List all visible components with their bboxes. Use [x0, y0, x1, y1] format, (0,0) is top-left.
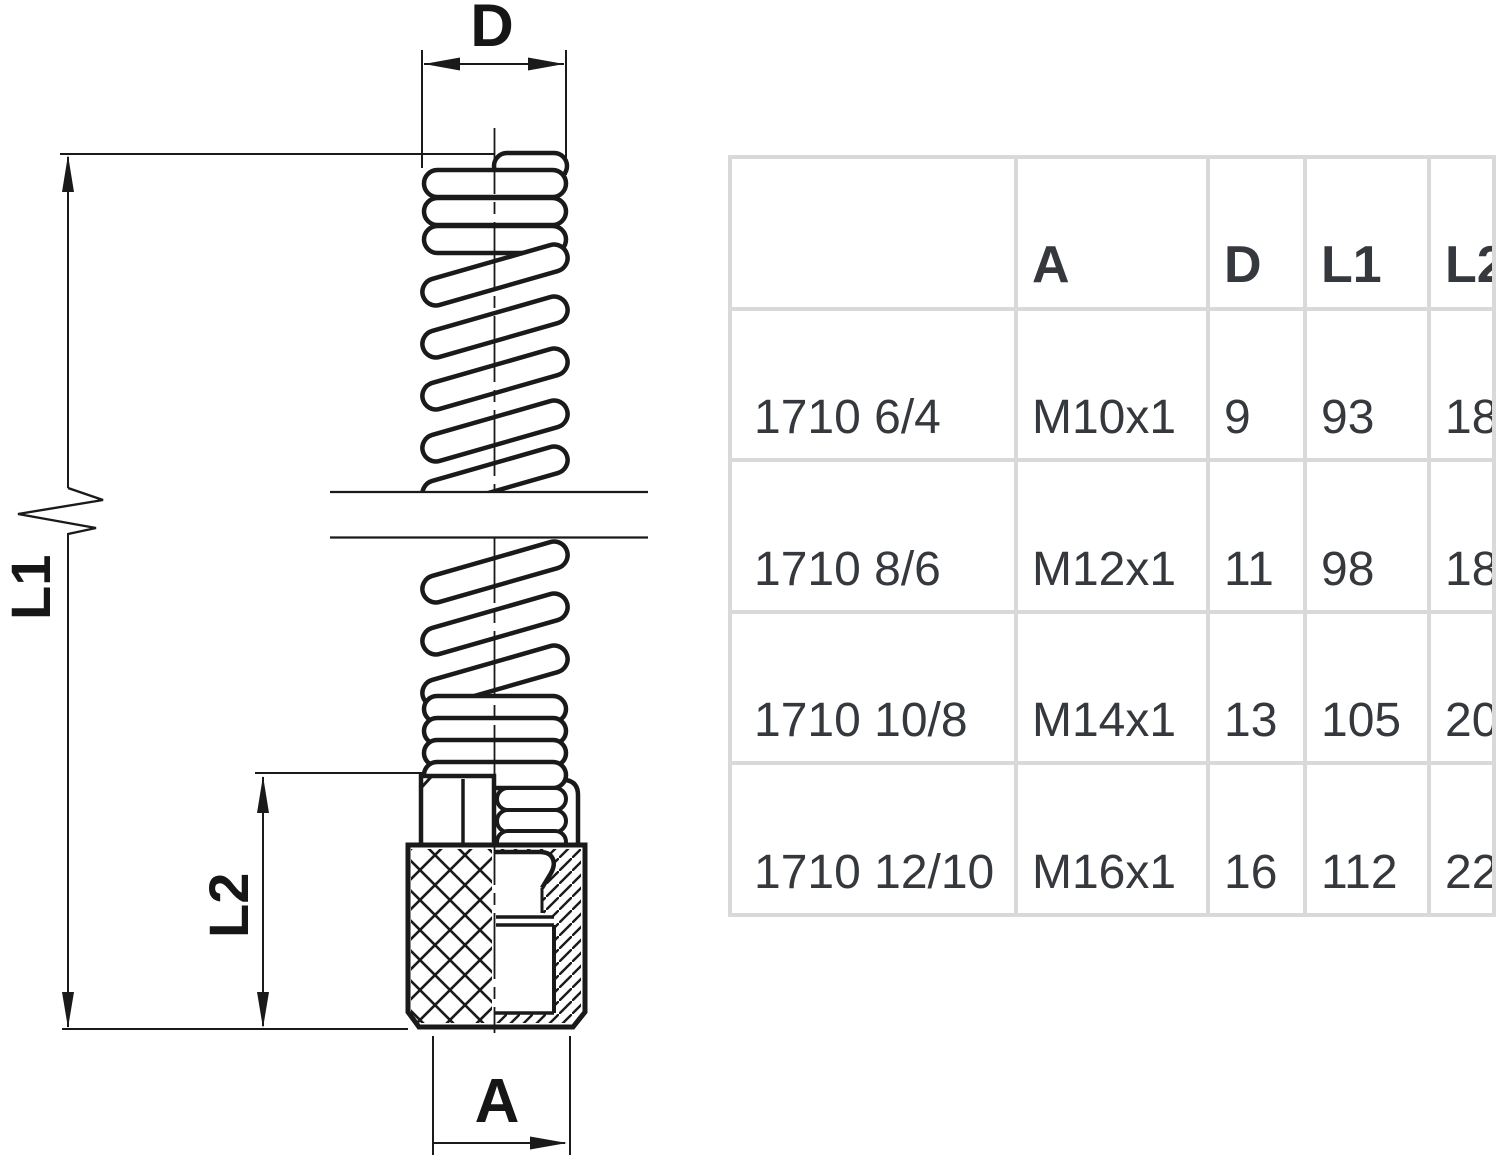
- nut-body: [421, 776, 494, 845]
- table-header-cell: [732, 159, 1014, 307]
- arrowhead-icon: [62, 155, 74, 192]
- table-cell-l1: 105: [1307, 614, 1427, 762]
- table-cell-l1: 98: [1307, 462, 1427, 610]
- table-cell-model: 1710 12/10: [732, 765, 1014, 913]
- coil-turn: [497, 810, 566, 832]
- table-cell-a: M14x1: [1018, 614, 1206, 762]
- label-l2: L2: [197, 873, 260, 938]
- table-cell-model: 1710 6/4: [732, 311, 1014, 459]
- arrowhead-icon: [530, 1137, 567, 1150]
- table-cell-l2: 20: [1431, 614, 1492, 762]
- arrowhead-icon: [62, 992, 74, 1028]
- coil-turn: [497, 788, 566, 810]
- table-cell-d: 16: [1210, 765, 1303, 913]
- table-header-cell-l1: L1: [1307, 159, 1427, 307]
- table-cell-l2: 18: [1431, 462, 1492, 610]
- page: D L1 L2 A: [0, 0, 1500, 1155]
- hex-nut: [421, 776, 494, 845]
- table-cell-model: 1710 8/6: [732, 462, 1014, 610]
- technical-drawing: D L1 L2 A: [0, 0, 720, 1155]
- knurl-texture: [411, 849, 492, 1023]
- table-cell-model: 1710 10/8: [732, 614, 1014, 762]
- label-a: A: [475, 1067, 520, 1136]
- table-header-cell-a: A: [1018, 159, 1206, 307]
- break-zigzag: [18, 488, 103, 534]
- table-cell-l1: 112: [1307, 765, 1427, 913]
- bore-cavity: [494, 852, 554, 1014]
- arrowhead-icon: [257, 776, 269, 813]
- arrowhead-icon: [424, 58, 460, 71]
- table-cell-l2: 22: [1431, 765, 1492, 913]
- dimension-l2: [255, 773, 425, 1028]
- table-cell-a: M12x1: [1018, 462, 1206, 610]
- table-cell-l1: 93: [1307, 311, 1427, 459]
- table-cell-a: M10x1: [1018, 311, 1206, 459]
- dimension-table: A D L1 L2 1710 6/4 M10x1 9 93 18 1710 8/…: [728, 155, 1496, 917]
- arrowhead-icon: [528, 58, 564, 71]
- knurled-body: [408, 845, 585, 1027]
- table-cell-d: 11: [1210, 462, 1303, 610]
- section-outer-wall: [566, 780, 578, 846]
- table-cell-a: M16x1: [1018, 765, 1206, 913]
- label-l1: L1: [0, 555, 62, 620]
- table-header-cell-d: D: [1210, 159, 1303, 307]
- arrowhead-icon: [257, 992, 269, 1028]
- table-header-cell-l2: L2: [1431, 159, 1492, 307]
- label-d: D: [470, 0, 513, 59]
- table-cell-l2: 18: [1431, 311, 1492, 459]
- table-cell-d: 13: [1210, 614, 1303, 762]
- break-band: [310, 491, 690, 537]
- table-cell-d: 9: [1210, 311, 1303, 459]
